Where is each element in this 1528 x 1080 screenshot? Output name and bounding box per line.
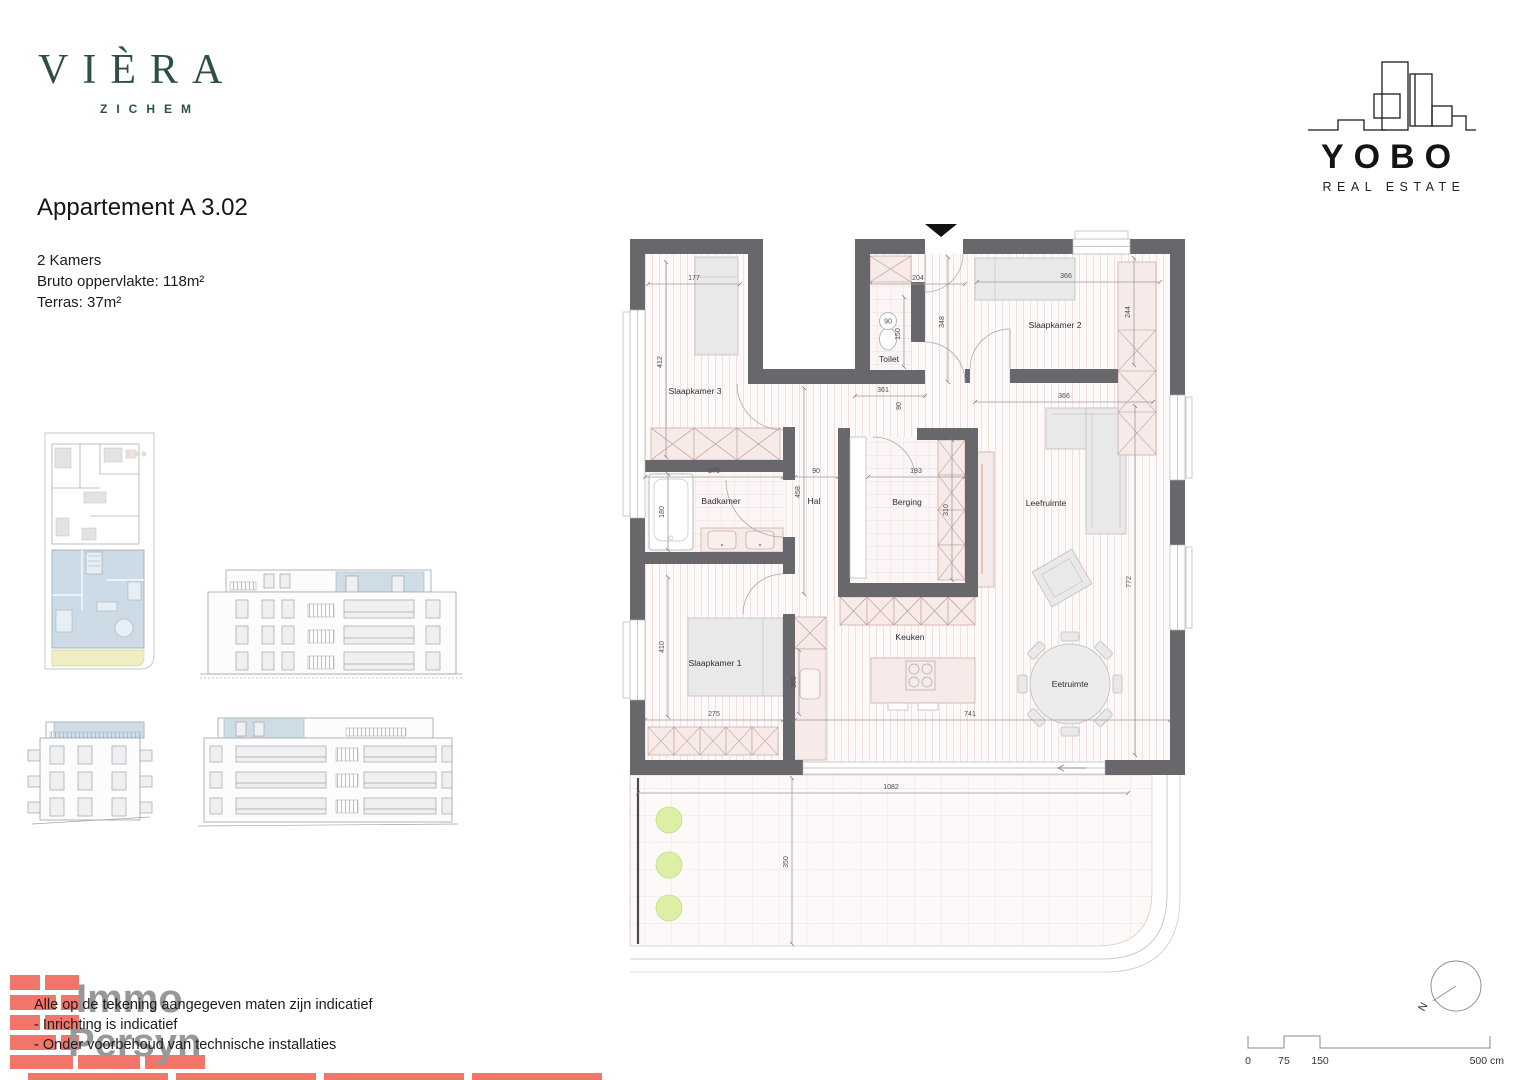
viera-logo-subtext: ZICHEM: [100, 102, 236, 116]
bathroom-sinks: [701, 528, 783, 552]
dim-label: 458: [795, 486, 802, 498]
disclaimer-line-2: - Inrichting is indicatief: [34, 1015, 373, 1035]
scale-tick-150: 150: [1311, 1055, 1329, 1067]
room-label-leefruimte: Leefruimte: [1026, 498, 1067, 508]
detail-rooms: 2 Kamers: [37, 250, 204, 271]
dim-label: 410: [659, 641, 666, 653]
room-label-slaapkamer1: Slaapkamer 1: [688, 658, 741, 668]
page-title: Appartement A 3.02: [37, 194, 248, 222]
dim-label: 412: [657, 356, 664, 368]
yobo-logo-subtext: REAL ESTATE: [1323, 180, 1466, 194]
toilet-bowl: 90: [880, 313, 897, 351]
sliding-door: [803, 762, 1105, 774]
terrace-floor: [630, 775, 1152, 946]
dim-label: 300: [791, 676, 798, 688]
room-label-hal: Hal: [808, 496, 821, 506]
dim-label: 350: [783, 856, 790, 868]
floor-plan: 90: [618, 222, 1193, 992]
dim-label: 348: [939, 316, 946, 328]
dim-label: 772: [1126, 576, 1133, 588]
kitchen-island: [871, 658, 975, 710]
room-label-badkamer: Badkamer: [701, 496, 740, 506]
viera-logo-text: VIÈRA: [38, 46, 236, 94]
dim-label: 150: [895, 328, 902, 340]
dim-label: 204: [912, 275, 924, 282]
elevation-rear: [196, 706, 464, 838]
elevation-front: [196, 556, 468, 688]
plan-sheet: VIÈRA ZICHEM Appartement A 3.02 2 Kamers…: [0, 0, 1528, 1080]
detail-terrace: Terras: 37m²: [37, 292, 204, 313]
dim-label: 741: [964, 711, 976, 718]
room-label-slaapkamer3: Slaapkamer 3: [668, 386, 721, 396]
elevation-side: [26, 710, 164, 836]
scale-bar: 0 75 150 500 cm: [1242, 1022, 1528, 1074]
yobo-skyline-icon: [1308, 62, 1476, 130]
viera-logo: VIÈRA ZICHEM: [38, 46, 236, 116]
dim-label: 275: [708, 468, 720, 475]
room-label-berging: Berging: [892, 497, 922, 507]
bathtub: [649, 474, 693, 550]
dim-label: 193: [910, 468, 922, 475]
scale-tick-75: 75: [1278, 1055, 1290, 1067]
yobo-logo: YOBO REAL ESTATE: [1298, 32, 1486, 207]
room-label-keuken: Keuken: [895, 632, 924, 642]
detail-area: Bruto oppervlakte: 118m²: [37, 271, 204, 292]
disclaimer-line-1: Alle op de tekening aangegeven maten zij…: [34, 995, 373, 1015]
dim-label: 361: [877, 387, 889, 394]
yobo-logo-text: YOBO: [1321, 138, 1461, 176]
dim-label: 1082: [883, 784, 899, 791]
key-plan-terrace: [52, 650, 144, 666]
key-plan-dots: [126, 452, 147, 457]
key-plan-highlighted-unit: [52, 550, 144, 648]
dim-label: 366: [1058, 393, 1070, 400]
key-plan: [42, 430, 157, 672]
dim-label: 90: [812, 468, 820, 475]
room-label-slaapkamer2: Slaapkamer 2: [1028, 320, 1081, 330]
dim-label: 90: [896, 402, 903, 410]
compass-north-label: N: [1416, 1001, 1430, 1014]
dim-label: 275: [708, 711, 720, 718]
dim-label: 180: [659, 506, 666, 518]
disclaimer-line-3: - Onder voorbehoud van technische instal…: [34, 1035, 373, 1055]
bed-slaapkamer3: [695, 257, 738, 355]
disclaimer: Alle op de tekening aangegeven maten zij…: [34, 995, 373, 1055]
dim-label: 90: [884, 319, 892, 326]
dim-label: 177: [688, 275, 700, 282]
dim-label: 244: [1125, 306, 1132, 318]
apartment-details: 2 Kamers Bruto oppervlakte: 118m² Terras…: [37, 250, 204, 313]
scale-tick-500: 500 cm: [1470, 1055, 1505, 1067]
scale-tick-0: 0: [1245, 1055, 1251, 1067]
pocket-door-berging: [850, 437, 866, 578]
entrance-arrow-icon: [925, 224, 957, 237]
room-label-toilet: Toilet: [879, 354, 900, 364]
dim-label: 310: [943, 504, 950, 516]
bed-slaapkamer1: [688, 618, 783, 696]
room-label-eetruimte: Eetruimte: [1052, 679, 1089, 689]
terrace-plants: [656, 807, 682, 921]
tv-unit: [976, 452, 994, 587]
dim-label: 366: [1060, 273, 1072, 280]
